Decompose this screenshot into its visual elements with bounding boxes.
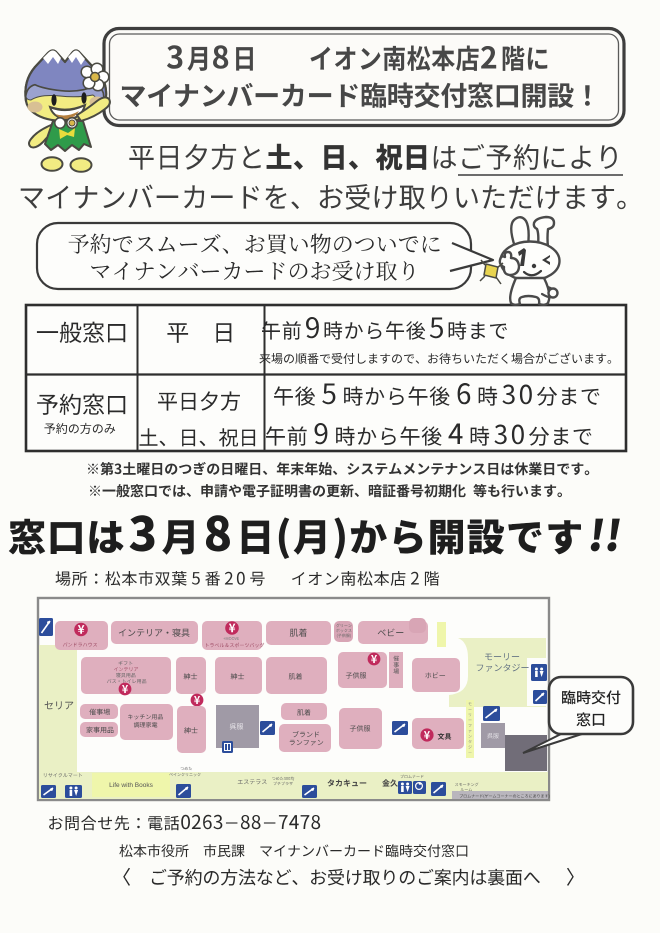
- svg-text:Life with Books: Life with Books: [109, 782, 153, 789]
